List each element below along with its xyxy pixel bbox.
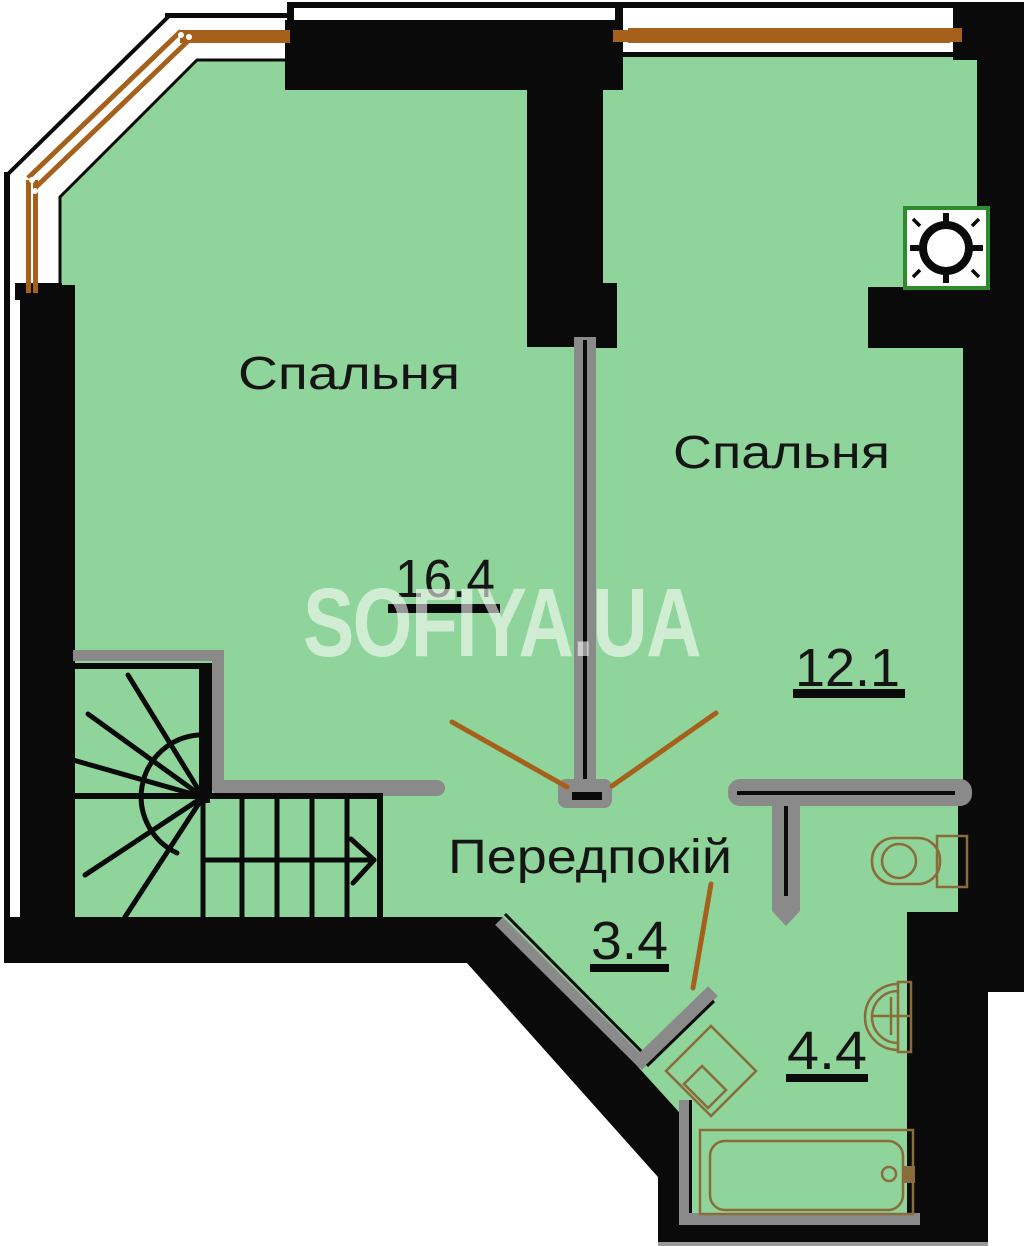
bathroom-area: 4.4 bbox=[787, 1021, 867, 1081]
window-joint-dot bbox=[32, 188, 38, 194]
bottom-edge-sliver bbox=[658, 1242, 988, 1246]
ventilation-shaft-icon bbox=[905, 208, 988, 288]
floor-plan-page: Спальня 16.4 Спальня 12.1 Передпокій 3.4… bbox=[0, 0, 1024, 1246]
area-underline bbox=[793, 689, 905, 698]
wall-duct-block bbox=[868, 287, 1024, 348]
watermark: SOFIYA.UA bbox=[303, 568, 700, 677]
window-joint-dot bbox=[186, 34, 192, 40]
bedroom-1-label: Спальня bbox=[238, 347, 460, 399]
window-joint-dot bbox=[178, 32, 184, 38]
wall-left bbox=[20, 285, 75, 963]
floor-plan: Спальня 16.4 Спальня 12.1 Передпокій 3.4… bbox=[0, 0, 1024, 1246]
area-underline bbox=[786, 1074, 868, 1082]
area-underline bbox=[590, 964, 669, 972]
window-sill-line bbox=[620, 52, 957, 57]
wall-bottom-left bbox=[10, 917, 470, 963]
hallway-label: Передпокій bbox=[448, 831, 732, 884]
hallway-area: 3.4 bbox=[591, 911, 668, 971]
window-joint-dot bbox=[29, 177, 35, 183]
bedroom-2-label: Спальня bbox=[673, 426, 890, 478]
window-top-right bbox=[613, 28, 962, 43]
